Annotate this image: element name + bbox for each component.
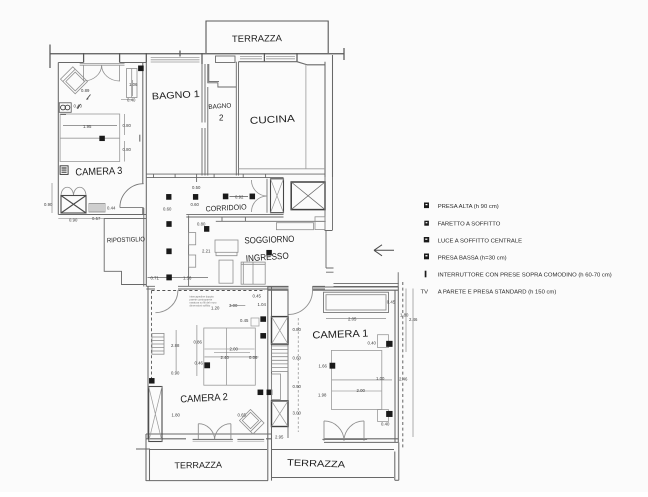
svg-text:0.92: 0.92 <box>235 195 244 200</box>
svg-text:0.44: 0.44 <box>107 206 116 211</box>
svg-text:0.71: 0.71 <box>151 275 160 280</box>
svg-text:0.80: 0.80 <box>293 327 302 332</box>
svg-text:0.45: 0.45 <box>240 318 249 323</box>
svg-text:0.46: 0.46 <box>195 361 204 366</box>
svg-text:0.40: 0.40 <box>381 422 390 427</box>
svg-text:1.80: 1.80 <box>172 413 181 418</box>
svg-text:0.80: 0.80 <box>123 123 132 128</box>
svg-text:1.80: 1.80 <box>400 313 409 318</box>
svg-text:CAMERA 1: CAMERA 1 <box>312 329 369 342</box>
svg-text:TERRAZZA: TERRAZZA <box>174 460 222 471</box>
svg-text:3.00: 3.00 <box>293 411 302 416</box>
svg-text:2: 2 <box>219 114 224 123</box>
svg-text:2.46: 2.46 <box>399 377 408 382</box>
svg-text:LUCE A SOFFITTO CENTRALE: LUCE A SOFFITTO CENTRALE <box>438 238 522 244</box>
svg-text:0.06: 0.06 <box>249 355 258 360</box>
svg-text:FARETTO A SOFFITTO: FARETTO A SOFFITTO <box>438 222 501 228</box>
svg-text:PRESA ALTA (h 90 cm): PRESA ALTA (h 90 cm) <box>438 204 499 210</box>
svg-text:CAMERA 3: CAMERA 3 <box>75 166 123 179</box>
svg-text:1.98: 1.98 <box>318 393 327 398</box>
svg-text:0.40: 0.40 <box>74 104 83 109</box>
svg-text:0.80: 0.80 <box>123 147 132 152</box>
svg-text:0.65: 0.65 <box>238 413 247 418</box>
svg-text:PRESA BASSA (h=30 cm): PRESA BASSA (h=30 cm) <box>438 255 507 261</box>
svg-text:0.80: 0.80 <box>197 222 206 227</box>
svg-text:1.95: 1.95 <box>83 124 92 129</box>
svg-text:0.50: 0.50 <box>192 185 201 190</box>
svg-text:TERRAZZA: TERRAZZA <box>232 33 283 44</box>
svg-text:1.36: 1.36 <box>183 275 192 280</box>
svg-text:2.21: 2.21 <box>202 249 211 254</box>
svg-text:1.06: 1.06 <box>129 82 138 87</box>
svg-text:0.86: 0.86 <box>194 340 203 345</box>
svg-text:2.00: 2.00 <box>230 347 239 352</box>
svg-text:1.04: 1.04 <box>258 302 267 307</box>
svg-text:2.05: 2.05 <box>348 317 357 322</box>
svg-text:0.45: 0.45 <box>253 294 262 299</box>
svg-text:1.20: 1.20 <box>211 306 220 311</box>
svg-text:0.45: 0.45 <box>387 300 396 305</box>
svg-text:0.60: 0.60 <box>191 202 200 207</box>
svg-text:1.00: 1.00 <box>376 376 385 381</box>
svg-text:1.66: 1.66 <box>319 364 328 369</box>
svg-text:0.89: 0.89 <box>81 88 90 93</box>
svg-text:RIPOSTIGLIO: RIPOSTIGLIO <box>107 236 145 244</box>
svg-text:TERRAZZA: TERRAZZA <box>287 458 346 470</box>
svg-text:2.00: 2.00 <box>357 388 366 393</box>
svg-text:0.40: 0.40 <box>368 341 377 346</box>
svg-text:INTERRUTTORE CON PRESE SOPRA C: INTERRUTTORE CON PRESE SOPRA COMODINO (h… <box>438 273 612 279</box>
svg-text:0.40: 0.40 <box>127 98 136 103</box>
svg-text:2.46: 2.46 <box>409 317 418 322</box>
svg-text:0.60: 0.60 <box>293 356 302 361</box>
svg-text:0.60: 0.60 <box>163 207 172 212</box>
svg-text:TV: TV <box>421 289 429 295</box>
svg-text:2.40: 2.40 <box>221 355 230 360</box>
svg-text:0.90: 0.90 <box>44 202 53 207</box>
svg-text:SOGGIORNO: SOGGIORNO <box>244 234 294 246</box>
svg-text:A PARETE E PRESA STANDARD (h 1: A PARETE E PRESA STANDARD (h 150 cm) <box>438 289 557 295</box>
svg-text:dimensioni soffitto: dimensioni soffitto <box>190 304 211 308</box>
svg-text:2.88: 2.88 <box>171 343 180 348</box>
svg-text:2.95: 2.95 <box>275 435 284 440</box>
svg-text:0.90: 0.90 <box>293 384 302 389</box>
svg-text:0.90: 0.90 <box>171 371 180 376</box>
